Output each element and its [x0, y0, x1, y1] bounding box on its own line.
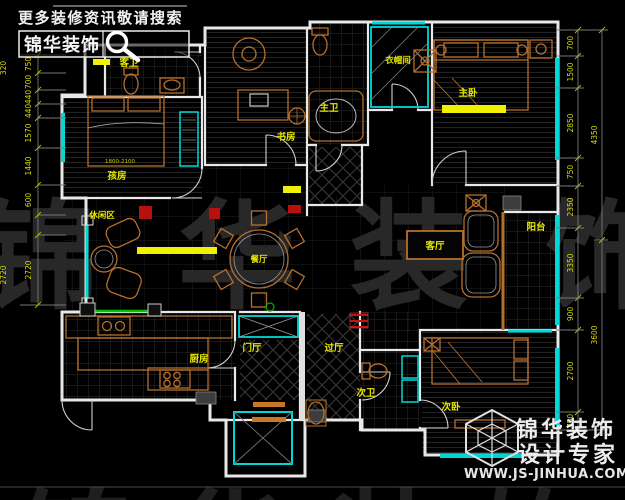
entry-sill: [252, 417, 286, 422]
red-marker: [209, 208, 220, 219]
room-label-dining: 餐厅: [249, 254, 268, 265]
green-line-endbox: [80, 303, 95, 316]
door-sill: [253, 402, 285, 407]
room-label-master-bath: 主卫: [319, 102, 339, 114]
highlight-bar: [442, 105, 506, 113]
search-hint-text: 更多装修资讯敬请搜索: [18, 9, 183, 27]
floor-master-bath: [309, 24, 368, 145]
dim-value: 3600: [590, 325, 599, 344]
watermark-char-bottom: 饰: [480, 479, 595, 500]
dim-value: 600: [24, 193, 33, 208]
logo-website-text: WWW.JS-JINHUA.COM: [464, 467, 625, 482]
room-label-master-bedroom: 主卧: [458, 87, 478, 99]
room-label-foyer: 门厅: [242, 342, 262, 354]
dim-value: 320: [0, 61, 8, 76]
watermark-char: 华: [178, 188, 296, 326]
floor-kitchen: [64, 314, 235, 400]
green-line-endbox: [148, 304, 161, 316]
bed-size-note: 1800-2100: [105, 159, 135, 165]
dim-value: 2700: [566, 361, 575, 380]
room-label-living: 客厅: [424, 240, 445, 252]
dim-value: 440: [24, 90, 33, 105]
dim-value: 1440: [24, 156, 33, 175]
floor-study: [207, 30, 307, 165]
highlight-bar: [283, 186, 301, 193]
room-label-study: 书房: [276, 131, 295, 143]
watermark-char-bottom: 华: [170, 479, 285, 500]
room-label-hallway: 过厅: [324, 342, 344, 354]
floorplan-canvas: 锦 华 装 饰 锦 华 装 饰: [0, 0, 625, 500]
door-kitchen-service: [62, 400, 92, 430]
column: [503, 196, 521, 210]
dim-value: 2350: [566, 197, 575, 216]
logo-brand-text: 锦华装饰: [516, 417, 616, 443]
dim-value: 4350: [590, 125, 599, 144]
dim-value: 3350: [566, 253, 575, 272]
room-label-kids-room: 孩房: [107, 170, 126, 182]
dim-value: 700: [566, 36, 575, 51]
column: [196, 392, 216, 404]
dim-value: 2850: [566, 113, 575, 132]
red-marker: [288, 205, 301, 213]
red-marker: [139, 206, 152, 219]
watermark-char-bottom: 装: [330, 479, 445, 500]
floorplan-drawing: 锦 华 装 饰 锦 华 装 饰: [0, 0, 625, 500]
watermark-char-bottom: 锦: [20, 479, 135, 500]
dim-value: 2720: [0, 265, 8, 284]
highlight-bar: [93, 59, 110, 65]
dim-value: 440: [24, 104, 33, 119]
room-label-leisure: 休闲区: [88, 210, 115, 221]
dim-value: 2720: [24, 260, 33, 279]
room-label-second-bath: 次卫: [356, 387, 376, 399]
floor-hallway: [307, 314, 360, 420]
highlight-bar: [137, 247, 217, 254]
logo-tagline-text: 设计专家: [518, 442, 618, 468]
room-label-kitchen: 厨房: [189, 353, 208, 365]
dim-value: 1570: [24, 123, 33, 142]
room-label-balcony: 阳台: [526, 221, 546, 233]
shaft-red-hatch: [350, 313, 368, 328]
thick-wall: [300, 312, 305, 420]
dim-value: 750: [566, 165, 575, 180]
room-label-second-bedroom: 次卧: [441, 401, 461, 413]
dim-value: 1500: [566, 62, 575, 81]
dim-value: 700: [24, 75, 33, 90]
floor-fills: [64, 24, 558, 455]
search-brand-text: 锦华装饰: [24, 34, 100, 56]
dim-value: 750: [24, 57, 33, 72]
search-branding: 更多装修资讯敬请搜索 锦华装饰: [18, 9, 189, 60]
room-label-cloakroom: 衣帽间: [385, 55, 411, 66]
dim-value: 900: [566, 307, 575, 322]
floor-master-bedroom: [434, 24, 558, 185]
